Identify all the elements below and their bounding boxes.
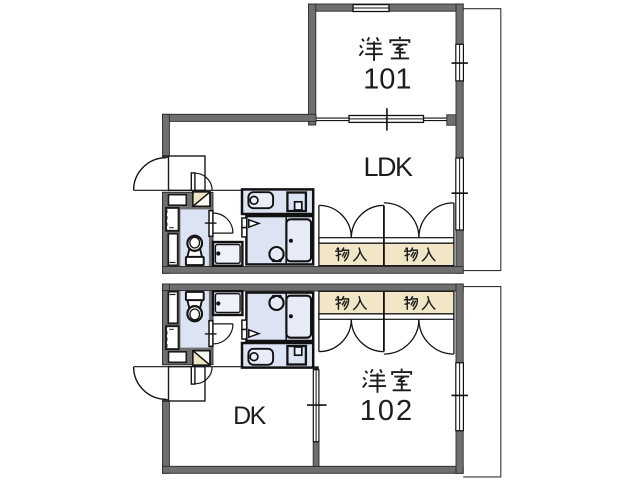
svg-text:DK: DK: [233, 402, 267, 430]
svg-text:102: 102: [360, 395, 414, 427]
svg-text:101: 101: [363, 64, 411, 96]
svg-text:LDK: LDK: [363, 152, 413, 182]
